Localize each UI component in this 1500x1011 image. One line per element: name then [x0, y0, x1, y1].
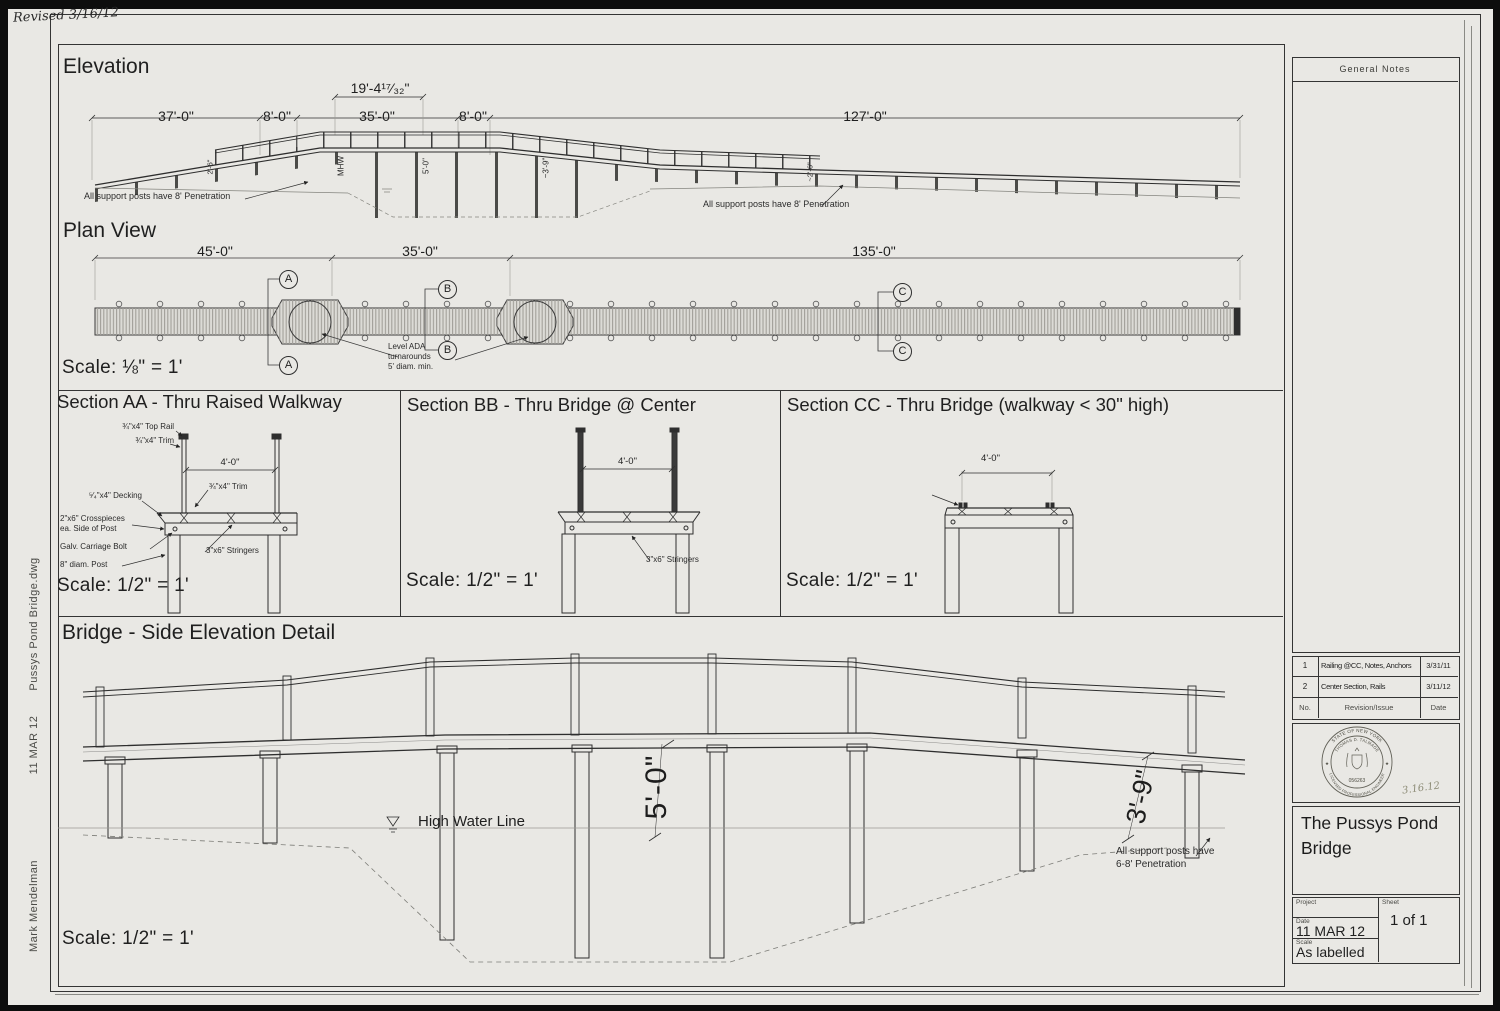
page-edge-line [55, 994, 1479, 995]
star-icon: ★ [1385, 761, 1390, 766]
revision-header-date: Date [1419, 703, 1458, 712]
revision-row-desc: Center Section, Rails [1321, 682, 1419, 691]
section-marker-b-top: B [438, 280, 457, 299]
section-bb-scale: Scale: 1/2" = 1' [406, 570, 538, 592]
scanned-drawing-sheet: Revised 3/16/12 Pussys Pond Bridge.dwg 1… [0, 0, 1500, 1011]
penetration-note: All support posts have 6-8' Penetration [1116, 846, 1276, 871]
project-title: The Pussys Pond Bridge [1301, 811, 1451, 862]
section-marker-c-bottom: C [893, 342, 912, 361]
elevation-vdim-4: ~2'-6" [806, 162, 815, 181]
section-bb-title: Section BB - Thru Bridge @ Center [407, 394, 696, 416]
section-aa-dim: 4'-0" [203, 457, 257, 468]
seal-license-number: 056263 [1349, 778, 1366, 784]
callout-trim: ¾"x4" Trim [106, 436, 174, 445]
sheet-value: 1 of 1 [1390, 912, 1428, 929]
callout-crosspieces: 2"x6" Crosspieces ea. Side of Post [60, 514, 125, 534]
revision-row-date: 3/31/11 [1419, 661, 1458, 670]
seal-name: THOMAS D. TALMAGE [1334, 737, 1380, 753]
revision-row-no: 2 [1292, 682, 1318, 691]
callout-post: 8" diam. Post [60, 560, 107, 569]
section-cc-dim: 4'-0" [963, 453, 1018, 464]
divider [1292, 81, 1458, 82]
section-bb-dim: 4'-0" [600, 456, 655, 467]
divider [58, 616, 1283, 617]
elevation-title: Elevation [63, 55, 149, 79]
elevation-note-left: All support posts have 8' Penetration [84, 191, 230, 201]
water-line-label: High Water Line [418, 813, 525, 830]
elevation-drawing [58, 85, 1283, 230]
project-label: Project [1296, 899, 1316, 906]
svg-text:THOMAS D. TALMAGE: THOMAS D. TALMAGE [1334, 737, 1380, 753]
elevation-note-right: All support posts have 8' Penetration [703, 199, 849, 209]
plan-ada-note: Level ADA turnarounds 5' diam. min. [388, 342, 433, 372]
section-aa-title: Section AA - Thru Raised Walkway [57, 391, 342, 413]
elevation-vdim-1: 2'-6" [206, 160, 215, 175]
seal-arc-bottom: LICENSED PROFESSIONAL ENGINEER [1329, 773, 1386, 797]
sheet-label: Sheet [1382, 899, 1399, 906]
scale-value: As labelled [1296, 944, 1365, 960]
callout-carriage-bolt: Galv. Carriage Bolt [60, 542, 127, 551]
date-value: 11 MAR 12 [1296, 923, 1365, 939]
callout-trim-2: ¾"x4" Trim [209, 482, 248, 491]
elevation-vdim-3: ~3'-9" [542, 158, 551, 179]
callout-stringers-aa: 3"x6" Stringers [206, 546, 259, 555]
revision-row-desc: Railing @CC, Notes, Anchors [1321, 661, 1419, 670]
pond-bottom-profile [83, 835, 1167, 962]
divider [1292, 676, 1458, 677]
section-marker-c-top: C [893, 283, 912, 302]
rail-posts [96, 654, 1196, 753]
section-marker-a-bottom: A [279, 356, 298, 375]
revision-row-no: 1 [1292, 661, 1318, 670]
general-notes-title: General Notes [1292, 64, 1458, 74]
side-elevation-scale: Scale: 1/2" = 1' [62, 928, 194, 950]
revision-row-date: 3/11/12 [1419, 682, 1458, 691]
divider [1292, 697, 1458, 698]
margin-filename: Pussys Pond Bridge.dwg [28, 557, 40, 690]
page-edge-line [1464, 20, 1465, 986]
section-marker-a-top: A [279, 270, 298, 289]
section-cc-title: Section CC - Thru Bridge (walkway < 30" … [787, 394, 1169, 416]
callout-decking: ⁵⁄₄"x4" Decking [70, 491, 142, 500]
divider [1378, 897, 1379, 962]
star-icon: ★ [1325, 761, 1330, 766]
plan-drawing [58, 240, 1283, 390]
side-dim-center: 5'-0" [640, 755, 674, 820]
revision-header-no: No. [1292, 703, 1318, 712]
elevation-vdim-2: 5'-0" [422, 158, 431, 174]
callout-top-rail: ¾"x4" Top Rail [100, 422, 174, 431]
margin-author: Mark Mendelman [28, 860, 40, 952]
margin-date: 11 MAR 12 [28, 716, 40, 775]
callout-stringers-bb: 3"x6" Stringers [646, 555, 699, 564]
revision-header-desc: Revision/Issue [1318, 703, 1420, 712]
svg-text:LICENSED PROFESSIONAL ENGINEER: LICENSED PROFESSIONAL ENGINEER [1329, 773, 1386, 797]
page-edge-line [1471, 26, 1472, 988]
elevation-vdim-mhw: MHW [337, 156, 346, 176]
section-cc-scale: Scale: 1/2" = 1' [786, 570, 918, 592]
engineer-seal-stamp: STATE OF NEW YORK THOMAS D. TALMAGE LICE… [1320, 725, 1394, 799]
general-notes-box [1292, 57, 1460, 653]
plan-scale: Scale: ⅛" = 1' [62, 357, 183, 379]
section-marker-b-bottom: B [438, 341, 457, 360]
section-aa-scale: Scale: 1/2" = 1' [57, 575, 189, 597]
